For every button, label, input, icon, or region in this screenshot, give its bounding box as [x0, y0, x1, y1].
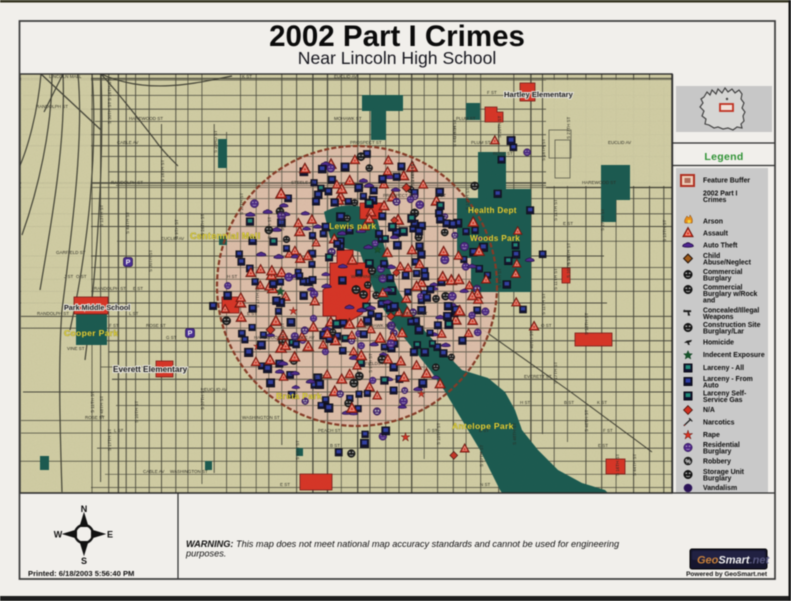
svg-text:ROSE ST: ROSE ST [146, 323, 166, 328]
svg-text:Weapons: Weapons [703, 314, 734, 321]
svg-text:Auto Theft: Auto Theft [703, 243, 738, 250]
svg-text:S 11TH ST: S 11TH ST [553, 199, 558, 221]
svg-text:Homicide: Homicide [703, 340, 734, 347]
svg-text:E ST: E ST [563, 221, 573, 226]
svg-text:Park Middle School: Park Middle School [64, 303, 130, 312]
svg-text:E ST: E ST [436, 193, 446, 198]
svg-text:Assault: Assault [703, 231, 729, 238]
svg-text:Powered by GeoSmart.net: Powered by GeoSmart.net [686, 571, 768, 578]
svg-text:HAREWOOD ST: HAREWOOD ST [582, 180, 616, 185]
svg-text:S 13TH ST: S 13TH ST [662, 219, 667, 242]
svg-text:EUCLID AV: EUCLID AV [161, 236, 184, 241]
svg-text:Abuse/Neglect: Abuse/Neglect [703, 260, 752, 267]
svg-text:S 44TH ST: S 44TH ST [410, 160, 415, 183]
svg-text:S 13TH ST: S 13TH ST [99, 204, 104, 227]
svg-text:RANDOLPH ST: RANDOLPH ST [111, 180, 143, 185]
svg-text:Arson: Arson [703, 219, 723, 226]
svg-text:CABLE AV: CABLE AV [117, 140, 138, 145]
svg-text:PLUM ST: PLUM ST [456, 116, 476, 121]
svg-text:and: and [703, 298, 715, 305]
svg-text:Crimes: Crimes [703, 197, 727, 204]
svg-text:W: W [54, 530, 63, 540]
svg-text:S 11TH ST: S 11TH ST [541, 293, 546, 315]
svg-text:S 13TH ST: S 13TH ST [239, 192, 244, 215]
svg-text:G ST: G ST [166, 335, 177, 340]
svg-text:MOHAWK ST: MOHAWK ST [363, 323, 391, 328]
svg-text:E ST: E ST [598, 443, 608, 448]
svg-text:S 44TH ST: S 44TH ST [267, 216, 272, 239]
svg-text:WASHINGTON ST: WASHINGTON ST [170, 469, 208, 474]
svg-text:S 9TH ST: S 9TH ST [368, 353, 373, 373]
svg-text:EVERETT ST: EVERETT ST [400, 311, 428, 316]
svg-text:STEELE AV: STEELE AV [291, 180, 315, 185]
svg-text:S 37TH ST: S 37TH ST [479, 444, 484, 467]
svg-text:ROSE ST: ROSE ST [493, 151, 513, 156]
svg-text:WASHINGTON ST: WASHINGTON ST [351, 274, 389, 279]
svg-text:PEACH ST: PEACH ST [318, 428, 341, 433]
svg-text:WASHINGTON ST: WASHINGTON ST [242, 415, 280, 420]
svg-text:L ST: L ST [114, 428, 124, 433]
svg-text:O ST: O ST [76, 274, 87, 279]
svg-text:Lewis park: Lewis park [329, 221, 376, 231]
svg-text:EUCLID AV: EUCLID AV [334, 74, 357, 79]
svg-text:%: % [685, 459, 691, 466]
svg-text:B ST: B ST [564, 400, 574, 405]
svg-text:S 46TH ST: S 46TH ST [584, 409, 589, 432]
svg-text:WARNING: This map does not mee: WARNING: This map does not meet national… [186, 539, 620, 549]
svg-text:S: S [81, 556, 87, 566]
svg-text:S 20TH ST: S 20TH ST [497, 115, 502, 138]
svg-text:H ST: H ST [227, 274, 238, 279]
svg-text:RANDOLPH ST: RANDOLPH ST [36, 104, 68, 109]
svg-text:CABLE AV: CABLE AV [143, 469, 164, 474]
svg-text:PLUM ST: PLUM ST [471, 140, 491, 145]
svg-text:EUCLID AV: EUCLID AV [204, 387, 227, 392]
svg-text:Auto: Auto [703, 383, 719, 390]
svg-text:Legend: Legend [704, 151, 743, 163]
svg-text:E: E [107, 530, 113, 540]
svg-text:GARFIELD ST: GARFIELD ST [56, 250, 86, 255]
svg-text:S 11TH ST: S 11TH ST [90, 391, 95, 413]
svg-text:S 16TH ST: S 16TH ST [615, 453, 620, 476]
svg-text:EVERETT ST: EVERETT ST [524, 374, 552, 379]
svg-text:S 17TH ST: S 17TH ST [107, 428, 112, 451]
svg-text:Breta Park: Breta Park [276, 391, 322, 401]
svg-text:Larceny - All: Larceny - All [703, 365, 744, 372]
svg-text:Burglary: Burglary [703, 476, 732, 483]
svg-text:S 16TH ST: S 16TH ST [541, 138, 546, 161]
svg-text:S 40TH ST: S 40TH ST [529, 330, 534, 353]
svg-text:S 17TH ST: S 17TH ST [255, 285, 260, 308]
svg-text:E ST: E ST [247, 311, 257, 316]
svg-text:Rape: Rape [703, 432, 720, 439]
svg-text:S 8TH ST: S 8TH ST [452, 119, 457, 139]
svg-text:E ST: E ST [133, 286, 143, 291]
svg-text:Burglary: Burglary [703, 449, 732, 456]
svg-text:Everett Elementary: Everett Elementary [113, 365, 188, 374]
svg-text:J ST: J ST [64, 274, 74, 279]
svg-text:Vandalism: Vandalism [703, 485, 737, 492]
svg-text:Centennial Mall: Centennial Mall [190, 231, 261, 241]
svg-text:S 10TH ST: S 10TH ST [566, 255, 571, 278]
svg-text:S 27TH ST: S 27TH ST [566, 116, 571, 139]
svg-text:S 10TH ST: S 10TH ST [134, 400, 139, 423]
svg-text:CABLE AV: CABLE AV [293, 335, 314, 340]
svg-text:VINE ST: VINE ST [67, 346, 85, 351]
svg-text:PROSPECT ST: PROSPECT ST [383, 193, 415, 198]
svg-text:N/A: N/A [703, 407, 715, 414]
svg-text:S 37TH ST: S 37TH ST [280, 208, 285, 231]
svg-text:Narcotics: Narcotics [703, 420, 735, 427]
svg-text:Indecent Exposure: Indecent Exposure [703, 352, 765, 359]
svg-text:RANDOLPH ST: RANDOLPH ST [94, 286, 126, 291]
svg-text:Printed: 6/18/2003 5:56:40 PM: Printed: 6/18/2003 5:56:40 PM [28, 569, 134, 578]
svg-text:S 27TH ST: S 27TH ST [600, 208, 605, 231]
svg-text:S 8TH ST: S 8TH ST [295, 440, 300, 460]
svg-text:purposes.: purposes. [185, 549, 226, 559]
svg-text:N ST: N ST [480, 482, 491, 487]
svg-text:Burglary: Burglary [703, 276, 732, 283]
svg-text:Cooper Park: Cooper Park [64, 328, 118, 338]
svg-text:F ST: F ST [603, 428, 613, 433]
svg-text:N: N [81, 504, 88, 514]
svg-text:HAREWOOD ST: HAREWOOD ST [129, 116, 163, 121]
svg-text:Health Dept: Health Dept [468, 206, 517, 215]
svg-text:S 44TH ST: S 44TH ST [125, 211, 130, 234]
svg-text:Robbery: Robbery [703, 459, 731, 466]
svg-text:MOHAWK ST: MOHAWK ST [334, 116, 362, 121]
svg-text:K ST: K ST [242, 74, 252, 79]
svg-text:S 37TH ST: S 37TH ST [200, 387, 205, 410]
svg-text:F ST: F ST [487, 90, 497, 95]
svg-text:O ST: O ST [541, 323, 552, 328]
svg-text:Service Gas: Service Gas [703, 397, 743, 404]
svg-text:S 17TH ST: S 17TH ST [553, 361, 558, 384]
svg-text:E ST: E ST [280, 482, 290, 487]
svg-text:S 48TH ST: S 48TH ST [99, 395, 104, 418]
svg-text:S 16TH ST: S 16TH ST [160, 159, 165, 182]
svg-text:S 23RD ST: S 23RD ST [213, 130, 218, 153]
svg-text:Woods Park: Woods Park [470, 234, 520, 243]
svg-text:LINCOLN MALL: LINCOLN MALL [49, 74, 82, 79]
svg-text:Hartley Elementary: Hartley Elementary [504, 90, 574, 99]
svg-text:Near Lincoln High School: Near Lincoln High School [298, 48, 497, 68]
svg-text:S 30TH ST: S 30TH ST [148, 249, 153, 272]
svg-text:S 44TH ST: S 44TH ST [632, 453, 637, 476]
svg-text:S 9TH ST: S 9TH ST [497, 268, 502, 288]
svg-text:Feature Buffer: Feature Buffer [703, 178, 750, 185]
svg-text:S 9TH ST: S 9TH ST [174, 219, 179, 239]
svg-text:S 16TH ST: S 16TH ST [107, 78, 112, 101]
svg-text:S 10TH ST: S 10TH ST [436, 422, 441, 445]
svg-text:K ST: K ST [597, 400, 607, 405]
svg-text:Antelope Park: Antelope Park [452, 421, 514, 431]
svg-text:B ST: B ST [330, 443, 340, 448]
svg-text:GeoSmart.net: GeoSmart.net [697, 555, 770, 567]
svg-text:EUCLID AV: EUCLID AV [608, 140, 631, 145]
svg-text:L ST: L ST [129, 311, 139, 316]
svg-text:S 11TH ST: S 11TH ST [553, 268, 558, 290]
svg-text:Burglary/Lar: Burglary/Lar [703, 329, 744, 336]
svg-text:S 30TH ST: S 30TH ST [107, 101, 112, 124]
svg-text:S 16TH ST: S 16TH ST [280, 322, 285, 345]
svg-text:H ST: H ST [520, 400, 531, 405]
svg-text:PROSPECT ST: PROSPECT ST [350, 140, 382, 145]
svg-text:S 16TH ST: S 16TH ST [584, 312, 589, 335]
svg-text:G ST: G ST [314, 374, 325, 379]
